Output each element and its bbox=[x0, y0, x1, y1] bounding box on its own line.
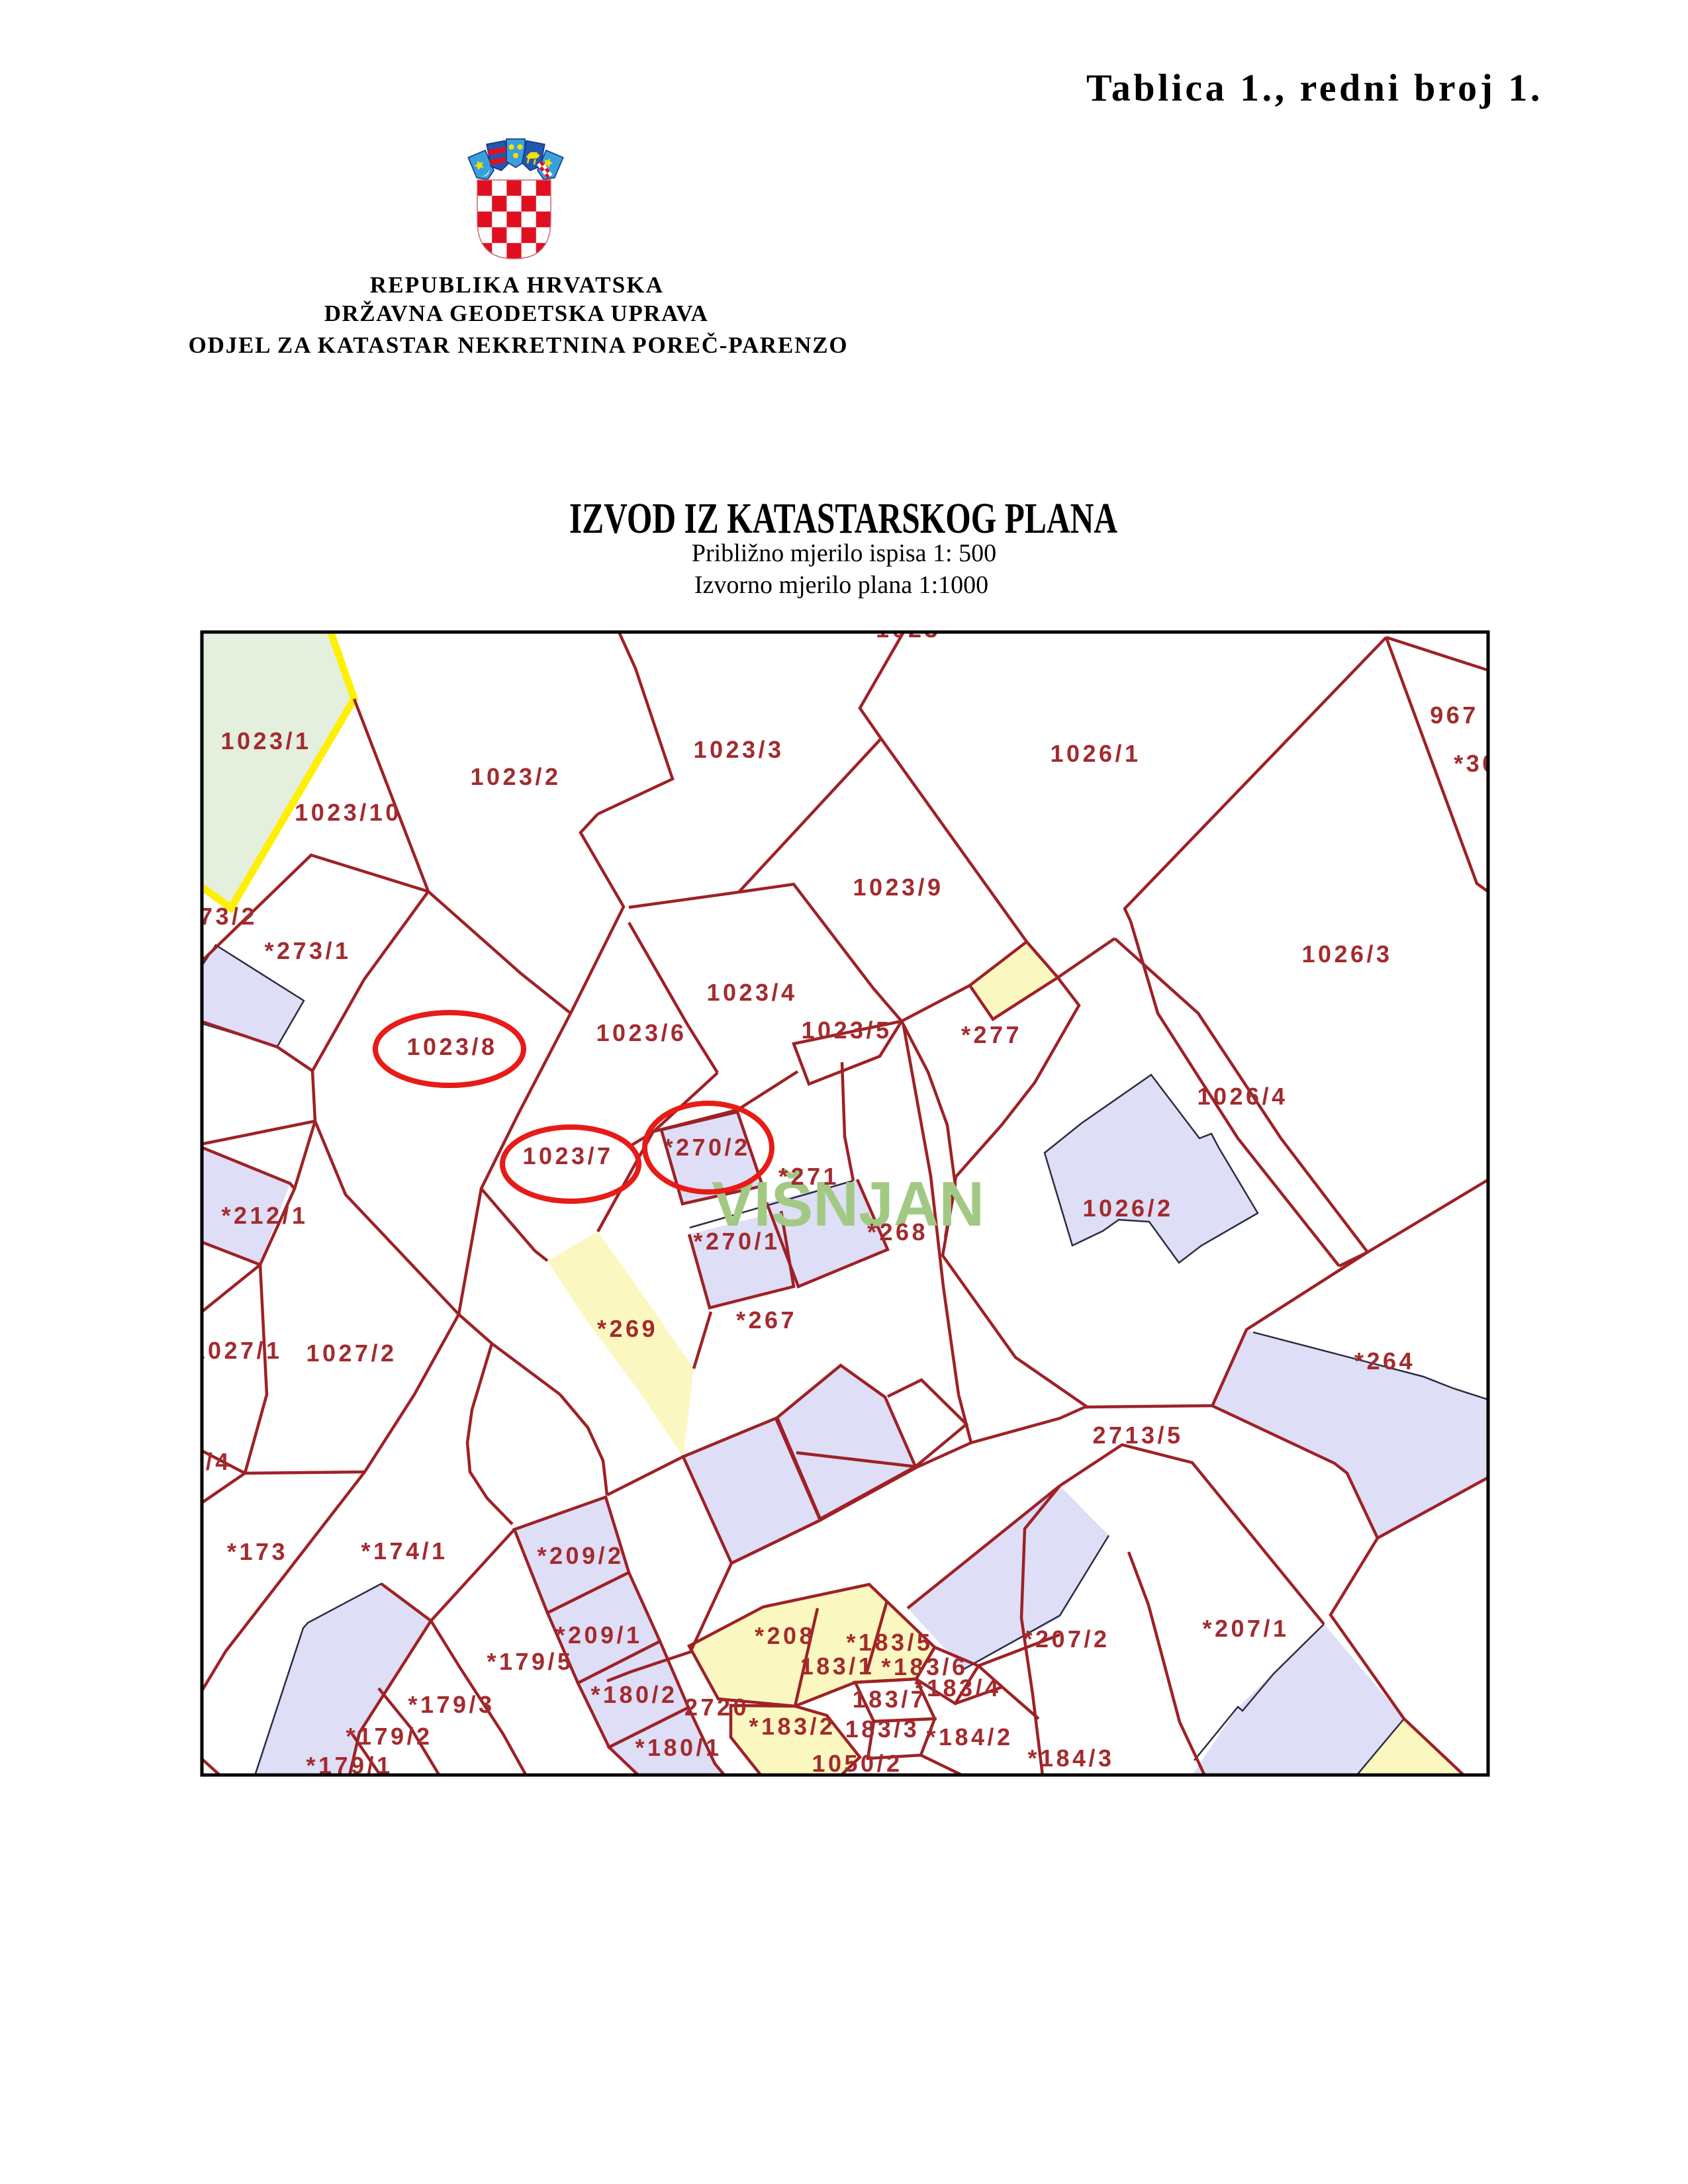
svg-text:1026/1: 1026/1 bbox=[1050, 740, 1141, 767]
svg-text:1026/2: 1026/2 bbox=[1082, 1195, 1173, 1222]
svg-text:1023/5: 1023/5 bbox=[801, 1017, 892, 1044]
svg-text:*183/2: *183/2 bbox=[749, 1713, 835, 1740]
svg-text:*264: *264 bbox=[1354, 1347, 1415, 1375]
svg-text:1023/1: 1023/1 bbox=[220, 727, 311, 754]
svg-text:*179/2: *179/2 bbox=[346, 1723, 432, 1750]
svg-text:*270/1: *270/1 bbox=[693, 1228, 780, 1255]
svg-text:1026/3: 1026/3 bbox=[1301, 940, 1392, 968]
svg-text:*269: *269 bbox=[597, 1315, 658, 1342]
svg-text:2713/5: 2713/5 bbox=[1092, 1422, 1183, 1449]
svg-text:2720: 2720 bbox=[684, 1694, 749, 1721]
svg-text:1023/6: 1023/6 bbox=[596, 1019, 686, 1046]
svg-text:1023/3: 1023/3 bbox=[693, 736, 784, 763]
svg-text:*209/2: *209/2 bbox=[537, 1542, 624, 1569]
svg-text:1027/2: 1027/2 bbox=[306, 1340, 397, 1367]
svg-text:1023/2: 1023/2 bbox=[470, 763, 561, 790]
svg-text:183/1: 183/1 bbox=[800, 1653, 875, 1680]
svg-text:*173: *173 bbox=[227, 1538, 288, 1565]
svg-text:1023: 1023 bbox=[876, 615, 941, 643]
svg-text:73/2: 73/2 bbox=[199, 903, 258, 930]
svg-text:*183/5: *183/5 bbox=[846, 1629, 933, 1656]
svg-text:*179/5: *179/5 bbox=[487, 1648, 573, 1675]
svg-text:*184/2: *184/2 bbox=[926, 1723, 1013, 1751]
svg-text:*174/1: *174/1 bbox=[361, 1537, 447, 1565]
svg-text:1023/10: 1023/10 bbox=[295, 799, 402, 826]
svg-text:*179/3: *179/3 bbox=[408, 1691, 494, 1718]
svg-text:1023/4: 1023/4 bbox=[706, 979, 797, 1006]
svg-text:*209/1: *209/1 bbox=[555, 1621, 642, 1649]
svg-text:*212/1: *212/1 bbox=[221, 1202, 308, 1229]
svg-text:1023/9: 1023/9 bbox=[853, 874, 943, 901]
svg-text:1023/7: 1023/7 bbox=[522, 1142, 613, 1169]
svg-text:183/7: 183/7 bbox=[853, 1686, 927, 1713]
svg-text:*180/2: *180/2 bbox=[590, 1681, 677, 1708]
svg-text:*271: *271 bbox=[778, 1163, 839, 1190]
svg-text:1027/1: 1027/1 bbox=[191, 1337, 282, 1364]
svg-text:*184/3: *184/3 bbox=[1027, 1745, 1114, 1772]
svg-text:*270/2: *270/2 bbox=[663, 1134, 750, 1161]
svg-text:*180/1: *180/1 bbox=[635, 1734, 722, 1761]
svg-text:*207/1: *207/1 bbox=[1202, 1615, 1289, 1642]
svg-text:183/3: 183/3 bbox=[845, 1715, 920, 1743]
svg-text:4/4: 4/4 bbox=[189, 1448, 232, 1475]
svg-text:1023/8: 1023/8 bbox=[406, 1033, 497, 1060]
svg-text:*207/2: *207/2 bbox=[1023, 1625, 1109, 1653]
svg-text:1026/4: 1026/4 bbox=[1197, 1083, 1288, 1110]
svg-text:*267: *267 bbox=[736, 1306, 797, 1334]
svg-text:967: 967 bbox=[1430, 702, 1479, 729]
svg-text:*273/1: *273/1 bbox=[264, 937, 351, 964]
svg-text:*30: *30 bbox=[1454, 750, 1499, 777]
svg-text:*208: *208 bbox=[755, 1622, 816, 1649]
svg-text:1050/2: 1050/2 bbox=[812, 1750, 902, 1777]
svg-text:*277: *277 bbox=[961, 1021, 1022, 1048]
svg-text:*268: *268 bbox=[867, 1218, 928, 1246]
svg-text:*183/4: *183/4 bbox=[914, 1674, 1001, 1702]
